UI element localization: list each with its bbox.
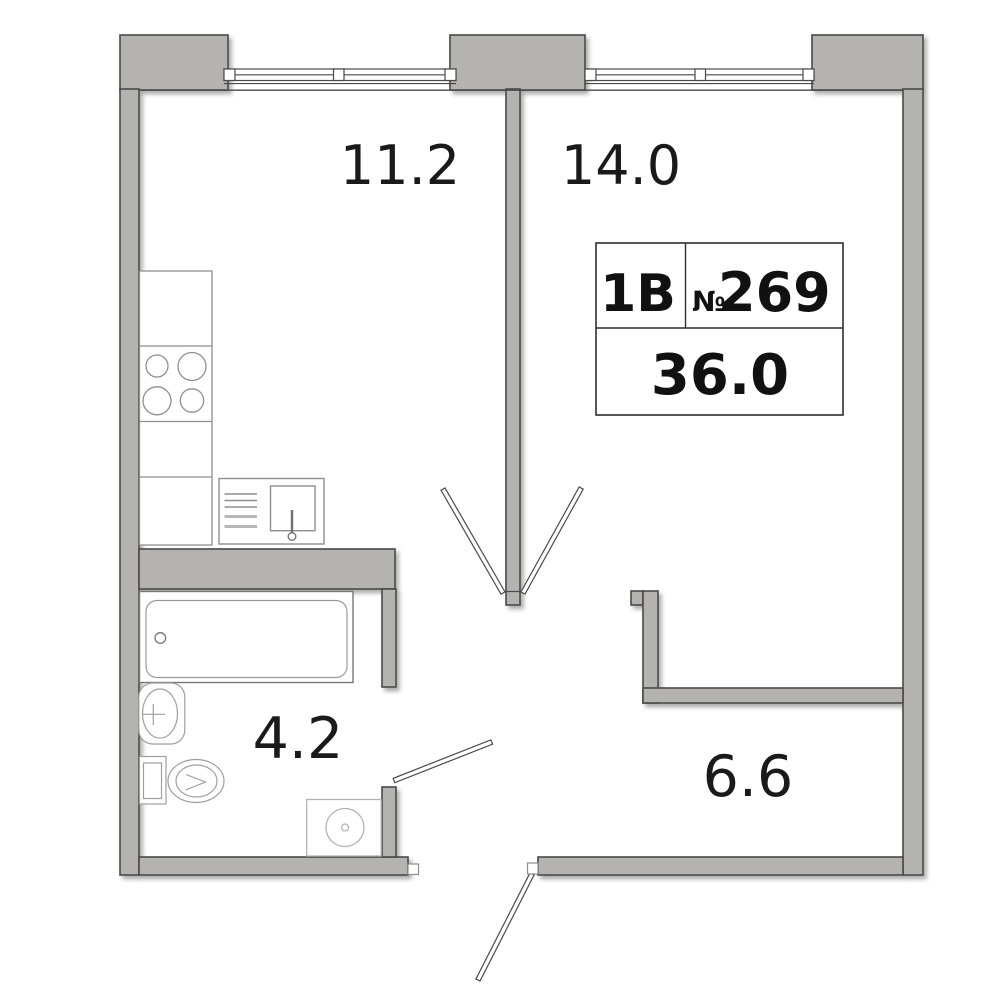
door-leaf-icon	[393, 740, 492, 783]
door-jamb	[408, 864, 419, 875]
unit-info-box: 1В № 269 36.0	[596, 243, 843, 415]
kitchen-sink	[219, 479, 324, 545]
unit-total-area: 36.0	[651, 343, 789, 408]
wall-segment	[812, 35, 923, 90]
toilet	[140, 757, 225, 805]
door-leaf-icon	[441, 488, 505, 594]
wall-segment	[120, 89, 139, 875]
doors	[393, 487, 583, 981]
floor-plan: 11.2 14.0 4.2 6.6 1В № 269 36.0	[0, 0, 1000, 1000]
room-area-bathroom: 4.2	[253, 706, 344, 772]
walls	[120, 35, 923, 875]
bathtub	[140, 592, 354, 683]
unit-type-label: 1В	[600, 264, 676, 324]
wall-segment	[538, 857, 903, 875]
door-leaf-icon	[476, 873, 534, 981]
wall-segment	[903, 89, 923, 875]
wall-segment	[506, 89, 520, 605]
living-room-window	[585, 69, 814, 84]
wall-segment	[631, 591, 643, 605]
wall-segment	[382, 787, 396, 857]
wall-segment	[643, 591, 658, 703]
door-leaf-icon	[521, 487, 583, 594]
wall-segment	[139, 857, 408, 875]
wall-segment	[139, 549, 395, 589]
wall-segment	[382, 589, 396, 687]
washbasin	[139, 683, 185, 744]
wall-segment	[120, 35, 228, 90]
wall-segment	[643, 688, 903, 703]
door-jamb	[528, 863, 539, 874]
washing-machine	[307, 800, 382, 857]
wall-segment	[450, 35, 585, 90]
room-area-hallway: 6.6	[703, 744, 794, 810]
room-area-kitchen: 11.2	[340, 134, 460, 197]
bathtub-icon	[140, 592, 354, 683]
kitchen-window	[224, 69, 456, 84]
floor-plan-svg: 11.2 14.0 4.2 6.6 1В № 269 36.0	[0, 0, 1000, 1000]
unit-number: 269	[718, 261, 831, 324]
door-jambs	[408, 863, 538, 875]
room-area-living-room: 14.0	[561, 134, 681, 197]
faucet-icon	[155, 633, 166, 644]
